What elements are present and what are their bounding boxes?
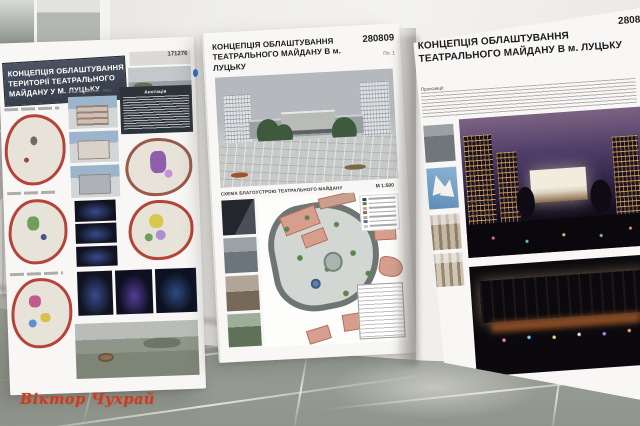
night-photo (75, 223, 117, 245)
caption-placeholder (7, 191, 58, 196)
plan-detail (41, 313, 51, 322)
code-badge: 280809 (362, 33, 394, 46)
code-badge: 171276 (130, 49, 191, 65)
poster-title: КОНЦЕПЦІЯ ОБЛАШТУВАННЯ ТЕАТРАЛЬНОГО МАЙД… (417, 25, 631, 67)
site-plan-blob (3, 113, 66, 185)
annotation-text-placeholder (122, 94, 190, 130)
reference-photo (221, 199, 256, 235)
building-photo (69, 130, 119, 163)
site-plan-blob (128, 199, 195, 261)
plan-detail (145, 233, 153, 241)
site-plan (257, 190, 409, 347)
right-poster: КОНЦЕПЦІЯ ОБЛАШТУВАННЯ ТЕАТРАЛЬНОГО МАЙД… (404, 2, 640, 412)
legend-swatch (364, 225, 368, 228)
plan-detail (30, 137, 37, 146)
site-plan-blob (125, 137, 194, 197)
right-poster-content: КОНЦЕПЦІЯ ОБЛАШТУВАННЯ ТЕАТРАЛЬНОГО МАЙД… (401, 0, 640, 413)
annotation-box: Анотація (119, 84, 193, 134)
right-poster-shadow (392, 36, 418, 366)
canopy-photo (426, 167, 458, 210)
legend-swatch (363, 198, 367, 201)
plan-detail (29, 295, 41, 307)
plan-detail (27, 217, 39, 231)
legend-swatch (363, 202, 367, 205)
plan-detail (41, 234, 47, 240)
night-photo (74, 200, 116, 222)
poster-title: КОНЦЕПЦІЯ ОБЛАШТУВАННЯ ТЕАТРАЛЬНОГО МАЙД… (212, 35, 355, 74)
night-photo (155, 267, 198, 312)
main-render (215, 68, 399, 188)
reference-photo (223, 237, 258, 273)
reference-photo (227, 313, 262, 348)
building (78, 139, 110, 160)
reference-photo (225, 275, 260, 311)
plan-detail (164, 169, 172, 177)
night-render-closeup (469, 253, 640, 376)
legend-swatch (364, 220, 368, 223)
photo-scene: КОНЦЕПЦІЯ ОБЛАШТУВАННЯ ТЕРИТОРІЇ ТЕАТРАЛ… (0, 0, 640, 426)
plan-detail (149, 214, 163, 228)
middle-poster: КОНЦЕПЦІЯ ОБЛАШТУВАННЯ ТЕАТРАЛЬНОГО МАЙД… (202, 23, 417, 363)
tower-silhouette (611, 135, 640, 215)
building (77, 105, 109, 126)
plan-detail (149, 150, 166, 173)
plan-detail (155, 230, 165, 240)
tower-silhouette (496, 151, 521, 222)
night-render (458, 106, 640, 258)
reference-photo (430, 214, 462, 251)
plan-detail (24, 158, 29, 163)
site-plan-blob (7, 198, 68, 265)
caption-placeholder (10, 271, 63, 276)
plaza-paving (218, 134, 398, 187)
legend-swatch (363, 211, 367, 214)
watermark: Віктор Чухрай (20, 391, 155, 408)
reference-photo (423, 124, 455, 163)
code-badge: 2808 (618, 14, 640, 27)
glowing-theater (529, 166, 587, 203)
stone-circle (98, 353, 114, 363)
tree-line (143, 337, 180, 348)
left-poster: КОНЦЕПЦІЯ ОБЛАШТУВАННЯ ТЕРИТОРІЇ ТЕАТРАЛ… (0, 37, 206, 396)
building-photo (67, 96, 117, 129)
tower-silhouette (463, 134, 497, 228)
bottom-panorama (74, 320, 199, 379)
night-photo (115, 269, 154, 314)
night-photo (76, 270, 113, 315)
reference-photo (432, 253, 464, 288)
legend-swatch (364, 216, 368, 219)
caption-placeholder (4, 107, 59, 112)
blue-pin (193, 69, 198, 77)
building (79, 174, 111, 195)
site-plan-blob (10, 277, 73, 349)
building-block (306, 325, 332, 345)
annotation-heading: Анотація (122, 87, 189, 94)
plan-detail (28, 320, 36, 328)
floor-tile-line (293, 347, 310, 426)
building-photo (70, 165, 120, 198)
tree-silhouette (590, 178, 613, 213)
board-photo (37, 0, 100, 42)
legend-swatch (363, 207, 367, 210)
night-photo (76, 245, 118, 267)
